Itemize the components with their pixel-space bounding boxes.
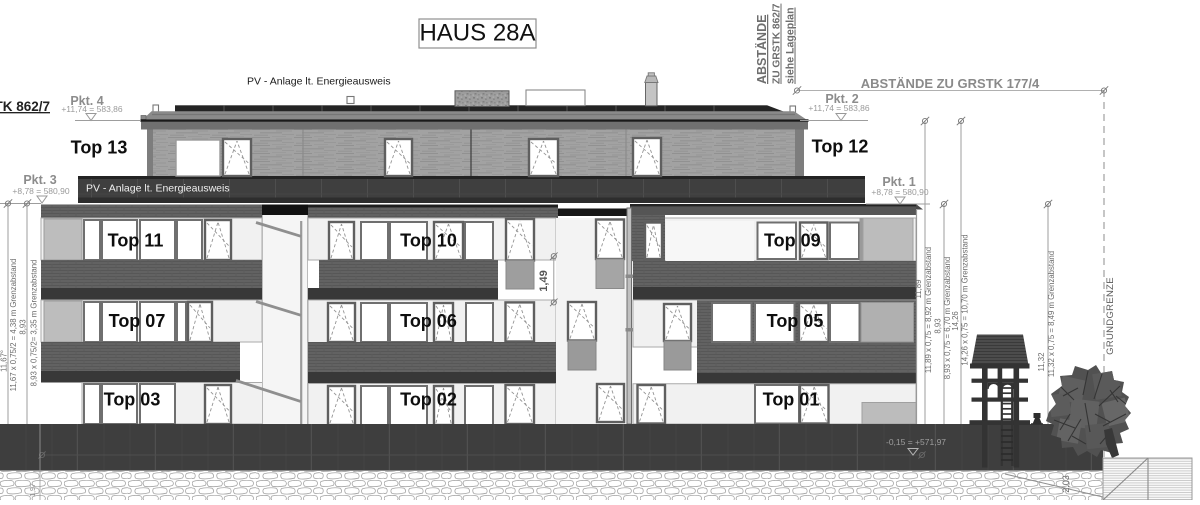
svg-text:Top 05: Top 05 <box>767 311 824 331</box>
svg-text:GRUNDGRENZE: GRUNDGRENZE <box>1105 277 1116 355</box>
svg-text:Top 06: Top 06 <box>400 311 457 331</box>
svg-text:siehe Lageplan: siehe Lageplan <box>785 7 797 84</box>
svg-text:GRSTK 862/7: GRSTK 862/7 <box>0 99 50 114</box>
svg-text:Top 13: Top 13 <box>71 138 128 158</box>
svg-text:Top 11: Top 11 <box>108 231 164 251</box>
svg-text:11,89: 11,89 <box>914 280 923 299</box>
svg-text:PV - Anlage lt. Energieausweis: PV - Anlage lt. Energieausweis <box>86 183 230 195</box>
svg-text:ABSTÄNDE: ABSTÄNDE <box>754 15 769 84</box>
svg-text:11,89 x 0,75 = 8,92 m Grenzabs: 11,89 x 0,75 = 8,92 m Grenzabstand <box>924 247 933 373</box>
svg-text:14,26 x 0,75 = 10,70 m Grenzab: 14,26 x 0,75 = 10,70 m Grenzabstand <box>961 234 970 365</box>
svg-text:PV - Anlage lt. Energieausweis: PV - Anlage lt. Energieausweis <box>247 76 391 88</box>
svg-text:11,67 x 0,75/2 = 4,38 m Grenza: 11,67 x 0,75/2 = 4,38 m Grenzabstand <box>9 259 18 392</box>
svg-text:-0,15 = +571,97: -0,15 = +571,97 <box>886 437 946 447</box>
svg-text:11,32: 11,32 <box>1037 353 1046 372</box>
svg-text:1,49: 1,49 <box>538 270 550 291</box>
svg-text:2,03: 2,03 <box>1061 475 1071 493</box>
svg-text:Top 10: Top 10 <box>400 231 457 251</box>
svg-text:Top 09: Top 09 <box>764 231 821 251</box>
svg-text:1,97: 1,97 <box>30 483 37 497</box>
svg-text:11,67°: 11,67° <box>0 350 9 372</box>
svg-text:ABSTÄNDE ZU GRSTK 177/4: ABSTÄNDE ZU GRSTK 177/4 <box>861 76 1040 91</box>
svg-text:Top 12: Top 12 <box>812 137 869 157</box>
svg-text:ZU GRSTK 862/7: ZU GRSTK 862/7 <box>772 3 783 84</box>
svg-text:8,93: 8,93 <box>19 319 28 334</box>
svg-text:+11,74 = 583,86: +11,74 = 583,86 <box>808 103 870 113</box>
svg-text:HAUS 28A: HAUS 28A <box>419 20 535 47</box>
svg-text:11,32 x 0,75 = 8,49 m Grenzabs: 11,32 x 0,75 = 8,49 m Grenzabstand <box>1047 251 1056 377</box>
svg-text:+8,78 = 580,90: +8,78 = 580,90 <box>12 186 69 196</box>
svg-text:Top 01: Top 01 <box>763 390 820 410</box>
svg-text:14,26: 14,26 <box>951 311 960 331</box>
svg-text:Pkt. 3: Pkt. 3 <box>23 173 56 187</box>
svg-text:Top 03: Top 03 <box>104 390 161 410</box>
svg-text:Top 07: Top 07 <box>109 311 166 331</box>
svg-text:+8,78 = 580,90: +8,78 = 580,90 <box>871 187 928 197</box>
svg-text:8,93 x 0,75/2= 3,35 m Grenzabs: 8,93 x 0,75/2= 3,35 m Grenzabstand <box>30 260 39 387</box>
svg-text:+11,74 = 583,86: +11,74 = 583,86 <box>61 104 123 114</box>
svg-text:Top 02: Top 02 <box>400 390 457 410</box>
svg-text:8,93: 8,93 <box>934 318 943 333</box>
